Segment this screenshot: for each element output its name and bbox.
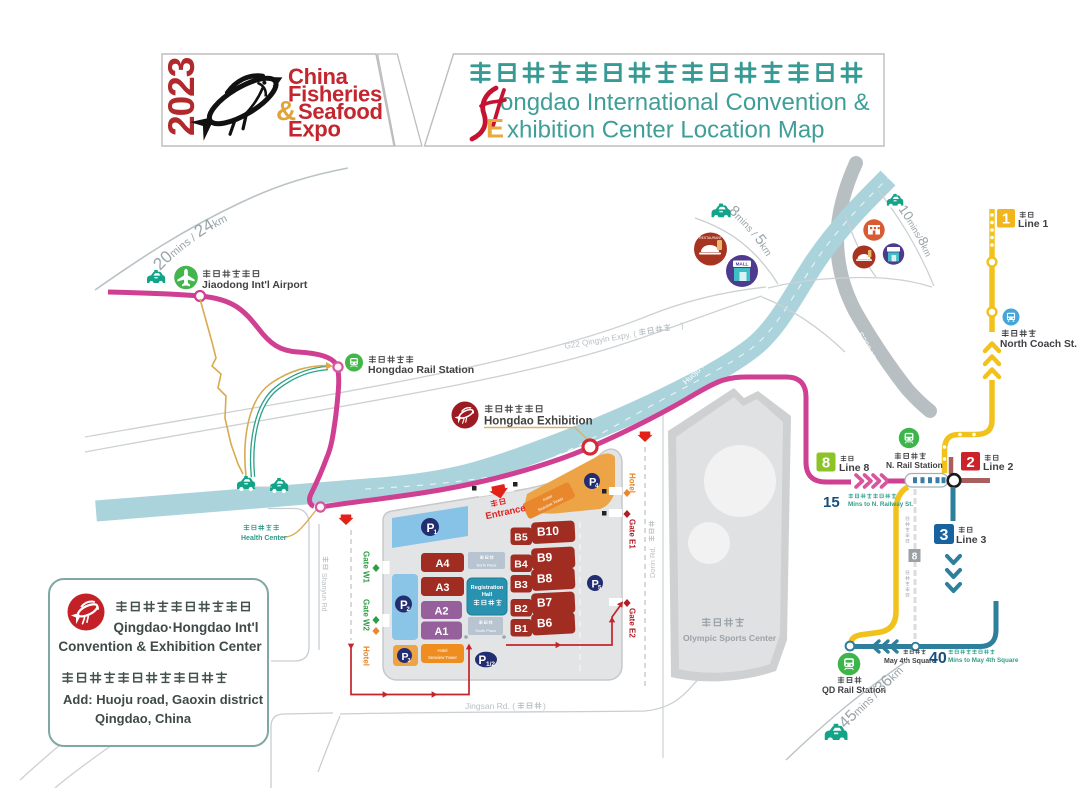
svg-text:B9: B9 (537, 550, 553, 565)
svg-text:Hotel: Hotel (628, 473, 637, 493)
svg-text:Hongdao Rail Station: Hongdao Rail Station (368, 364, 474, 376)
svg-text:Jingsan Rd. (: Jingsan Rd. ( (465, 701, 515, 711)
svg-text:): ) (543, 701, 546, 711)
svg-text:Convention & Exhibition Center: Convention & Exhibition Center (58, 639, 262, 654)
svg-text:Mins to N. Railway St.: Mins to N. Railway St. (848, 501, 913, 508)
svg-text:xhibition Center Location Map: xhibition Center Location Map (507, 117, 825, 144)
svg-text:B4: B4 (514, 559, 528, 571)
svg-text:Hongdao Exhibition: Hongdao Exhibition (484, 416, 593, 428)
svg-text:Gate W1: Gate W1 (362, 551, 371, 584)
svg-text:Hotel: Hotel (362, 646, 371, 666)
svg-text:North Plaza: North Plaza (477, 564, 498, 568)
svg-text:8: 8 (912, 552, 918, 563)
svg-text:Shanyun Rd: Shanyun Rd (320, 573, 327, 612)
svg-text:Registration: Registration (471, 585, 504, 591)
svg-text:Olympic Sports Center: Olympic Sports Center (683, 633, 777, 643)
svg-text:3: 3 (408, 658, 411, 664)
svg-text:B5: B5 (514, 532, 528, 544)
svg-text:South Plaza: South Plaza (475, 629, 496, 633)
svg-text:Dorin Rd.: Dorin Rd. (648, 546, 657, 578)
svg-text:Add: Huoju road, Gaoxin distri: Add: Huoju road, Gaoxin district (63, 692, 264, 707)
svg-text:MALL: MALL (736, 262, 749, 267)
svg-text:2023: 2023 (161, 57, 202, 136)
svg-text:B6: B6 (537, 616, 553, 631)
svg-text:Hotel: Hotel (437, 648, 447, 653)
svg-text:A1: A1 (434, 626, 448, 638)
svg-text:B7: B7 (537, 595, 553, 610)
svg-text:RESTAURANT: RESTAURANT (699, 236, 722, 240)
svg-text:15: 15 (823, 494, 840, 511)
svg-text:2: 2 (966, 454, 974, 471)
svg-text:1: 1 (434, 529, 438, 536)
svg-text:40: 40 (929, 650, 947, 667)
svg-text:ongdao International Conventio: ongdao International Convention & (500, 89, 870, 116)
svg-text:Gate E2: Gate E2 (628, 608, 637, 638)
svg-text:B2: B2 (514, 603, 528, 615)
svg-text:Line 2: Line 2 (983, 461, 1014, 473)
svg-text:8: 8 (822, 455, 830, 472)
svg-text:Qingdao, China: Qingdao, China (95, 711, 192, 726)
svg-text:Line 8: Line 8 (839, 462, 870, 474)
svg-text:3: 3 (940, 527, 949, 544)
svg-text:Mins to May 4th Square: Mins to May 4th Square (948, 657, 1019, 664)
svg-text:A3: A3 (435, 582, 449, 594)
svg-text:&: & (276, 95, 296, 126)
svg-text:Gate E1: Gate E1 (628, 519, 637, 549)
svg-text:A4: A4 (435, 558, 450, 570)
svg-text:B1: B1 (514, 623, 528, 635)
svg-text:Line 1: Line 1 (1018, 218, 1049, 230)
svg-text:Jiaodong Int'l Airport: Jiaodong Int'l Airport (202, 279, 308, 291)
svg-text:B3: B3 (514, 579, 528, 591)
svg-text:B8: B8 (537, 571, 553, 586)
svg-text:Seaview Tower: Seaview Tower (428, 655, 457, 660)
svg-text:Line 3: Line 3 (956, 534, 987, 546)
svg-text:E: E (486, 114, 504, 144)
svg-text:1/2: 1/2 (486, 661, 495, 668)
svg-text:B10: B10 (537, 524, 560, 539)
svg-text:1: 1 (1002, 211, 1010, 228)
svg-text:N. Rail Station: N. Rail Station (886, 460, 943, 470)
svg-text:Gate W2: Gate W2 (362, 599, 371, 632)
svg-text:A2: A2 (434, 606, 448, 618)
svg-text:Health Center: Health Center (241, 535, 287, 542)
svg-text:North Coach St.: North Coach St. (1000, 339, 1077, 350)
svg-text:Hall: Hall (482, 592, 493, 598)
svg-text:Qingdao·Hongdao Int'l: Qingdao·Hongdao Int'l (114, 620, 259, 635)
